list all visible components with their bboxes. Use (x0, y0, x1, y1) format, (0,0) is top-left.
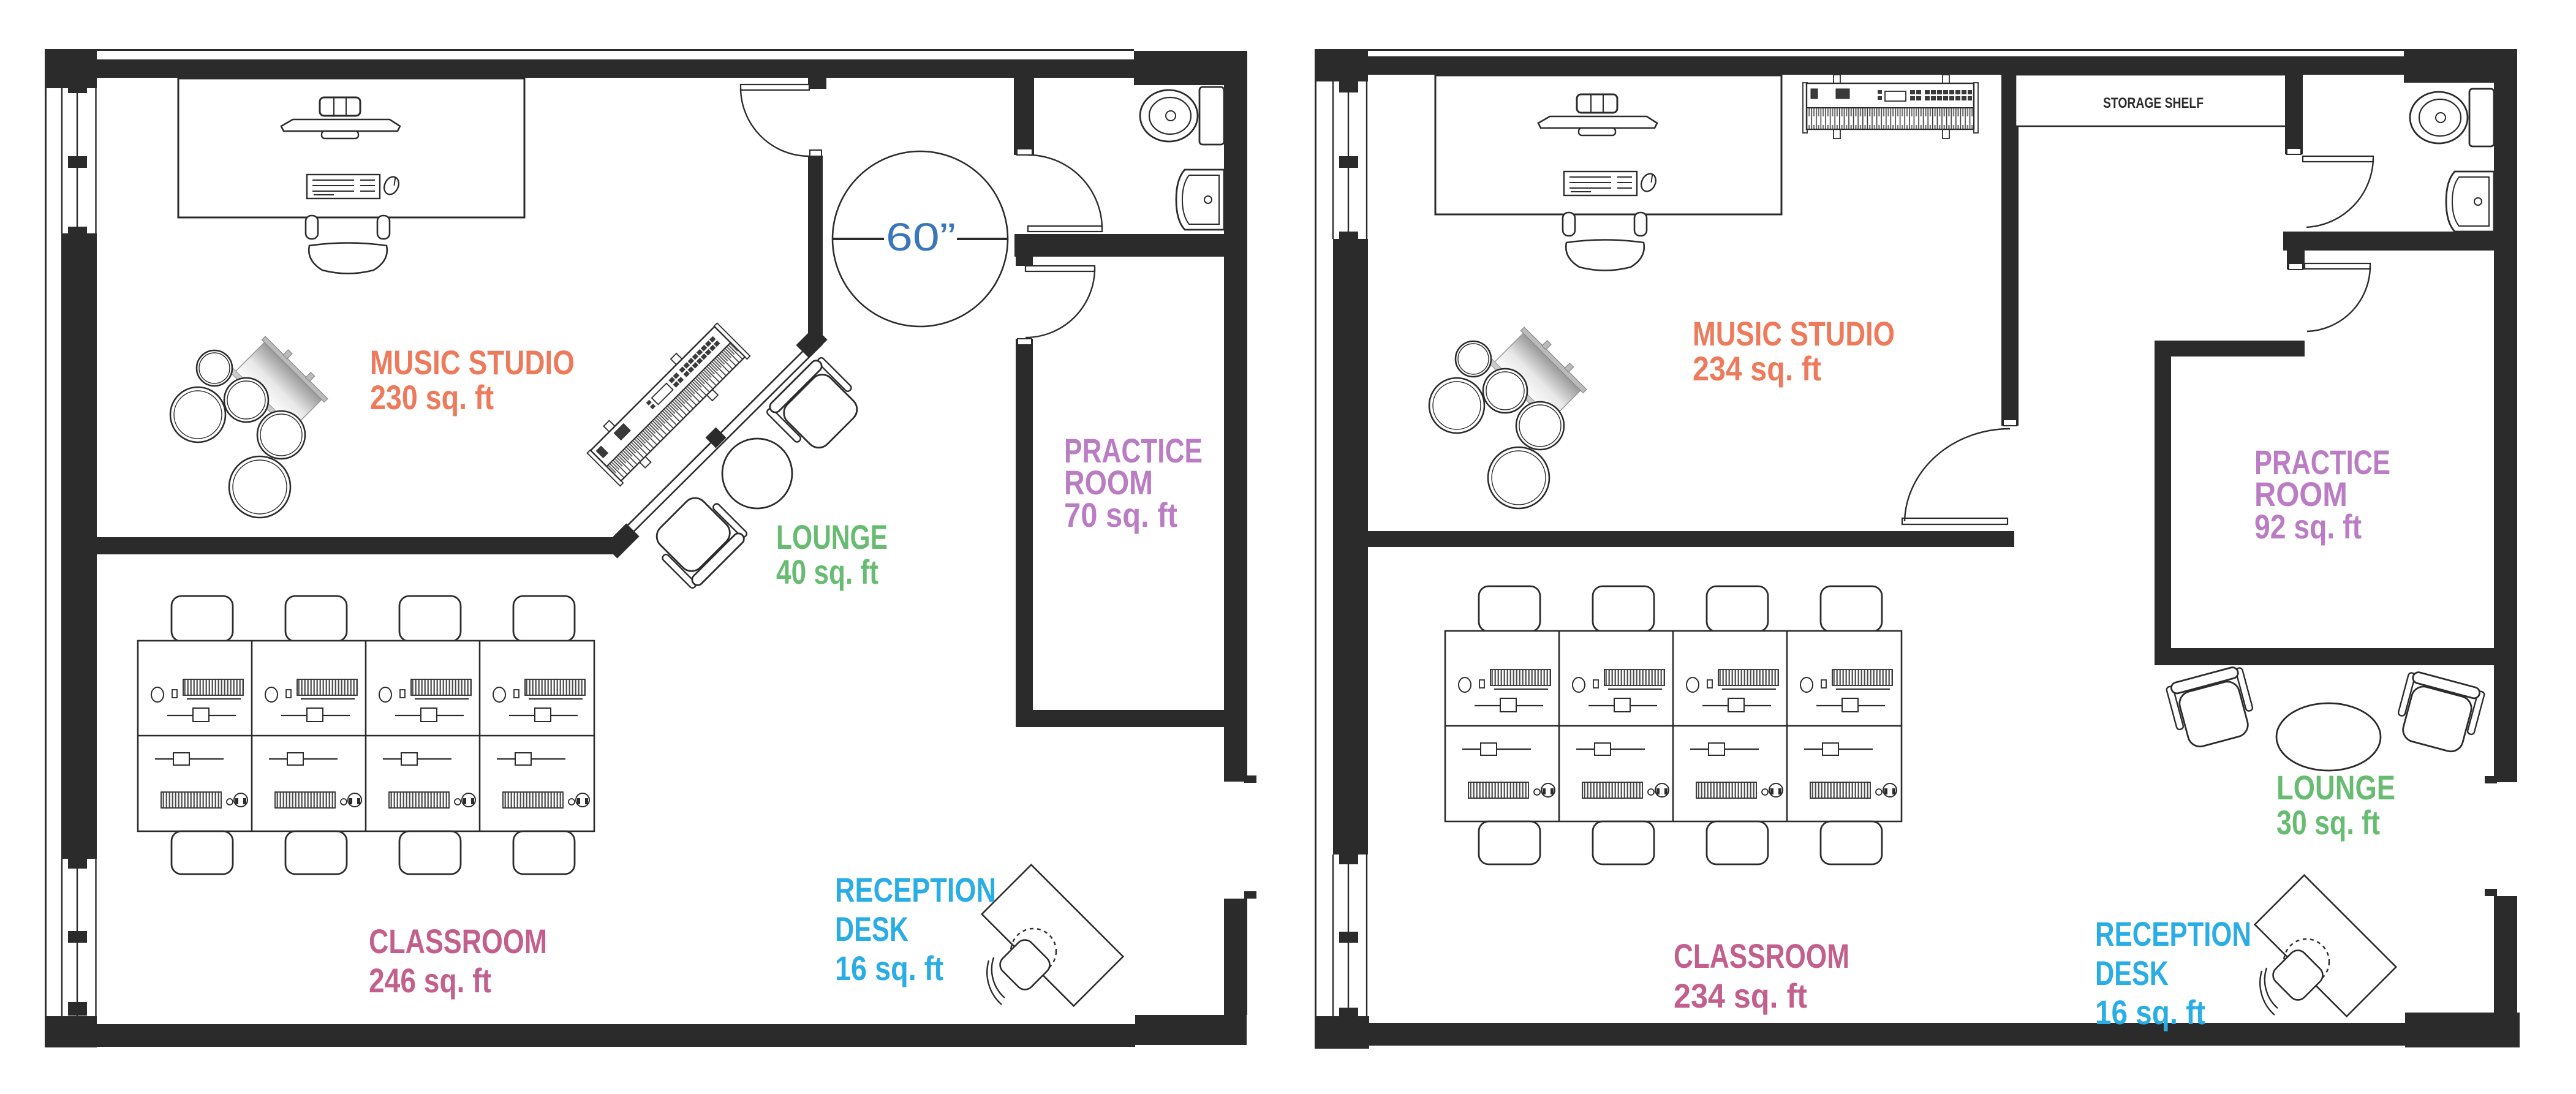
svg-text:MUSIC STUDIO: MUSIC STUDIO (370, 343, 575, 382)
svg-text:CLASSROOM: CLASSROOM (369, 922, 547, 960)
svg-text:DESK: DESK (2095, 954, 2169, 992)
svg-text:MUSIC STUDIO: MUSIC STUDIO (1693, 314, 1895, 353)
svg-text:RECEPTION: RECEPTION (835, 870, 996, 909)
svg-text:CLASSROOM: CLASSROOM (1674, 937, 1849, 975)
svg-text:40 sq. ft: 40 sq. ft (776, 553, 878, 591)
svg-text:60”: 60” (886, 215, 956, 259)
svg-text:234 sq. ft: 234 sq. ft (1693, 349, 1821, 388)
svg-text:RECEPTION: RECEPTION (2095, 915, 2251, 953)
svg-text:LOUNGE: LOUNGE (776, 518, 888, 556)
svg-text:70 sq. ft: 70 sq. ft (1064, 496, 1177, 534)
svg-text:LOUNGE: LOUNGE (2276, 768, 2395, 807)
svg-text:16 sq. ft: 16 sq. ft (835, 949, 943, 987)
svg-text:16 sq. ft: 16 sq. ft (2095, 993, 2205, 1032)
svg-text:246 sq. ft: 246 sq. ft (369, 961, 491, 1000)
svg-text:230 sq. ft: 230 sq. ft (370, 378, 494, 417)
svg-text:DESK: DESK (835, 910, 908, 948)
svg-text:92 sq. ft: 92 sq. ft (2254, 507, 2362, 546)
svg-text:30 sq. ft: 30 sq. ft (2276, 803, 2380, 842)
svg-text:234 sq. ft: 234 sq. ft (1674, 976, 1807, 1015)
svg-text:STORAGE SHELF: STORAGE SHELF (2103, 95, 2204, 111)
